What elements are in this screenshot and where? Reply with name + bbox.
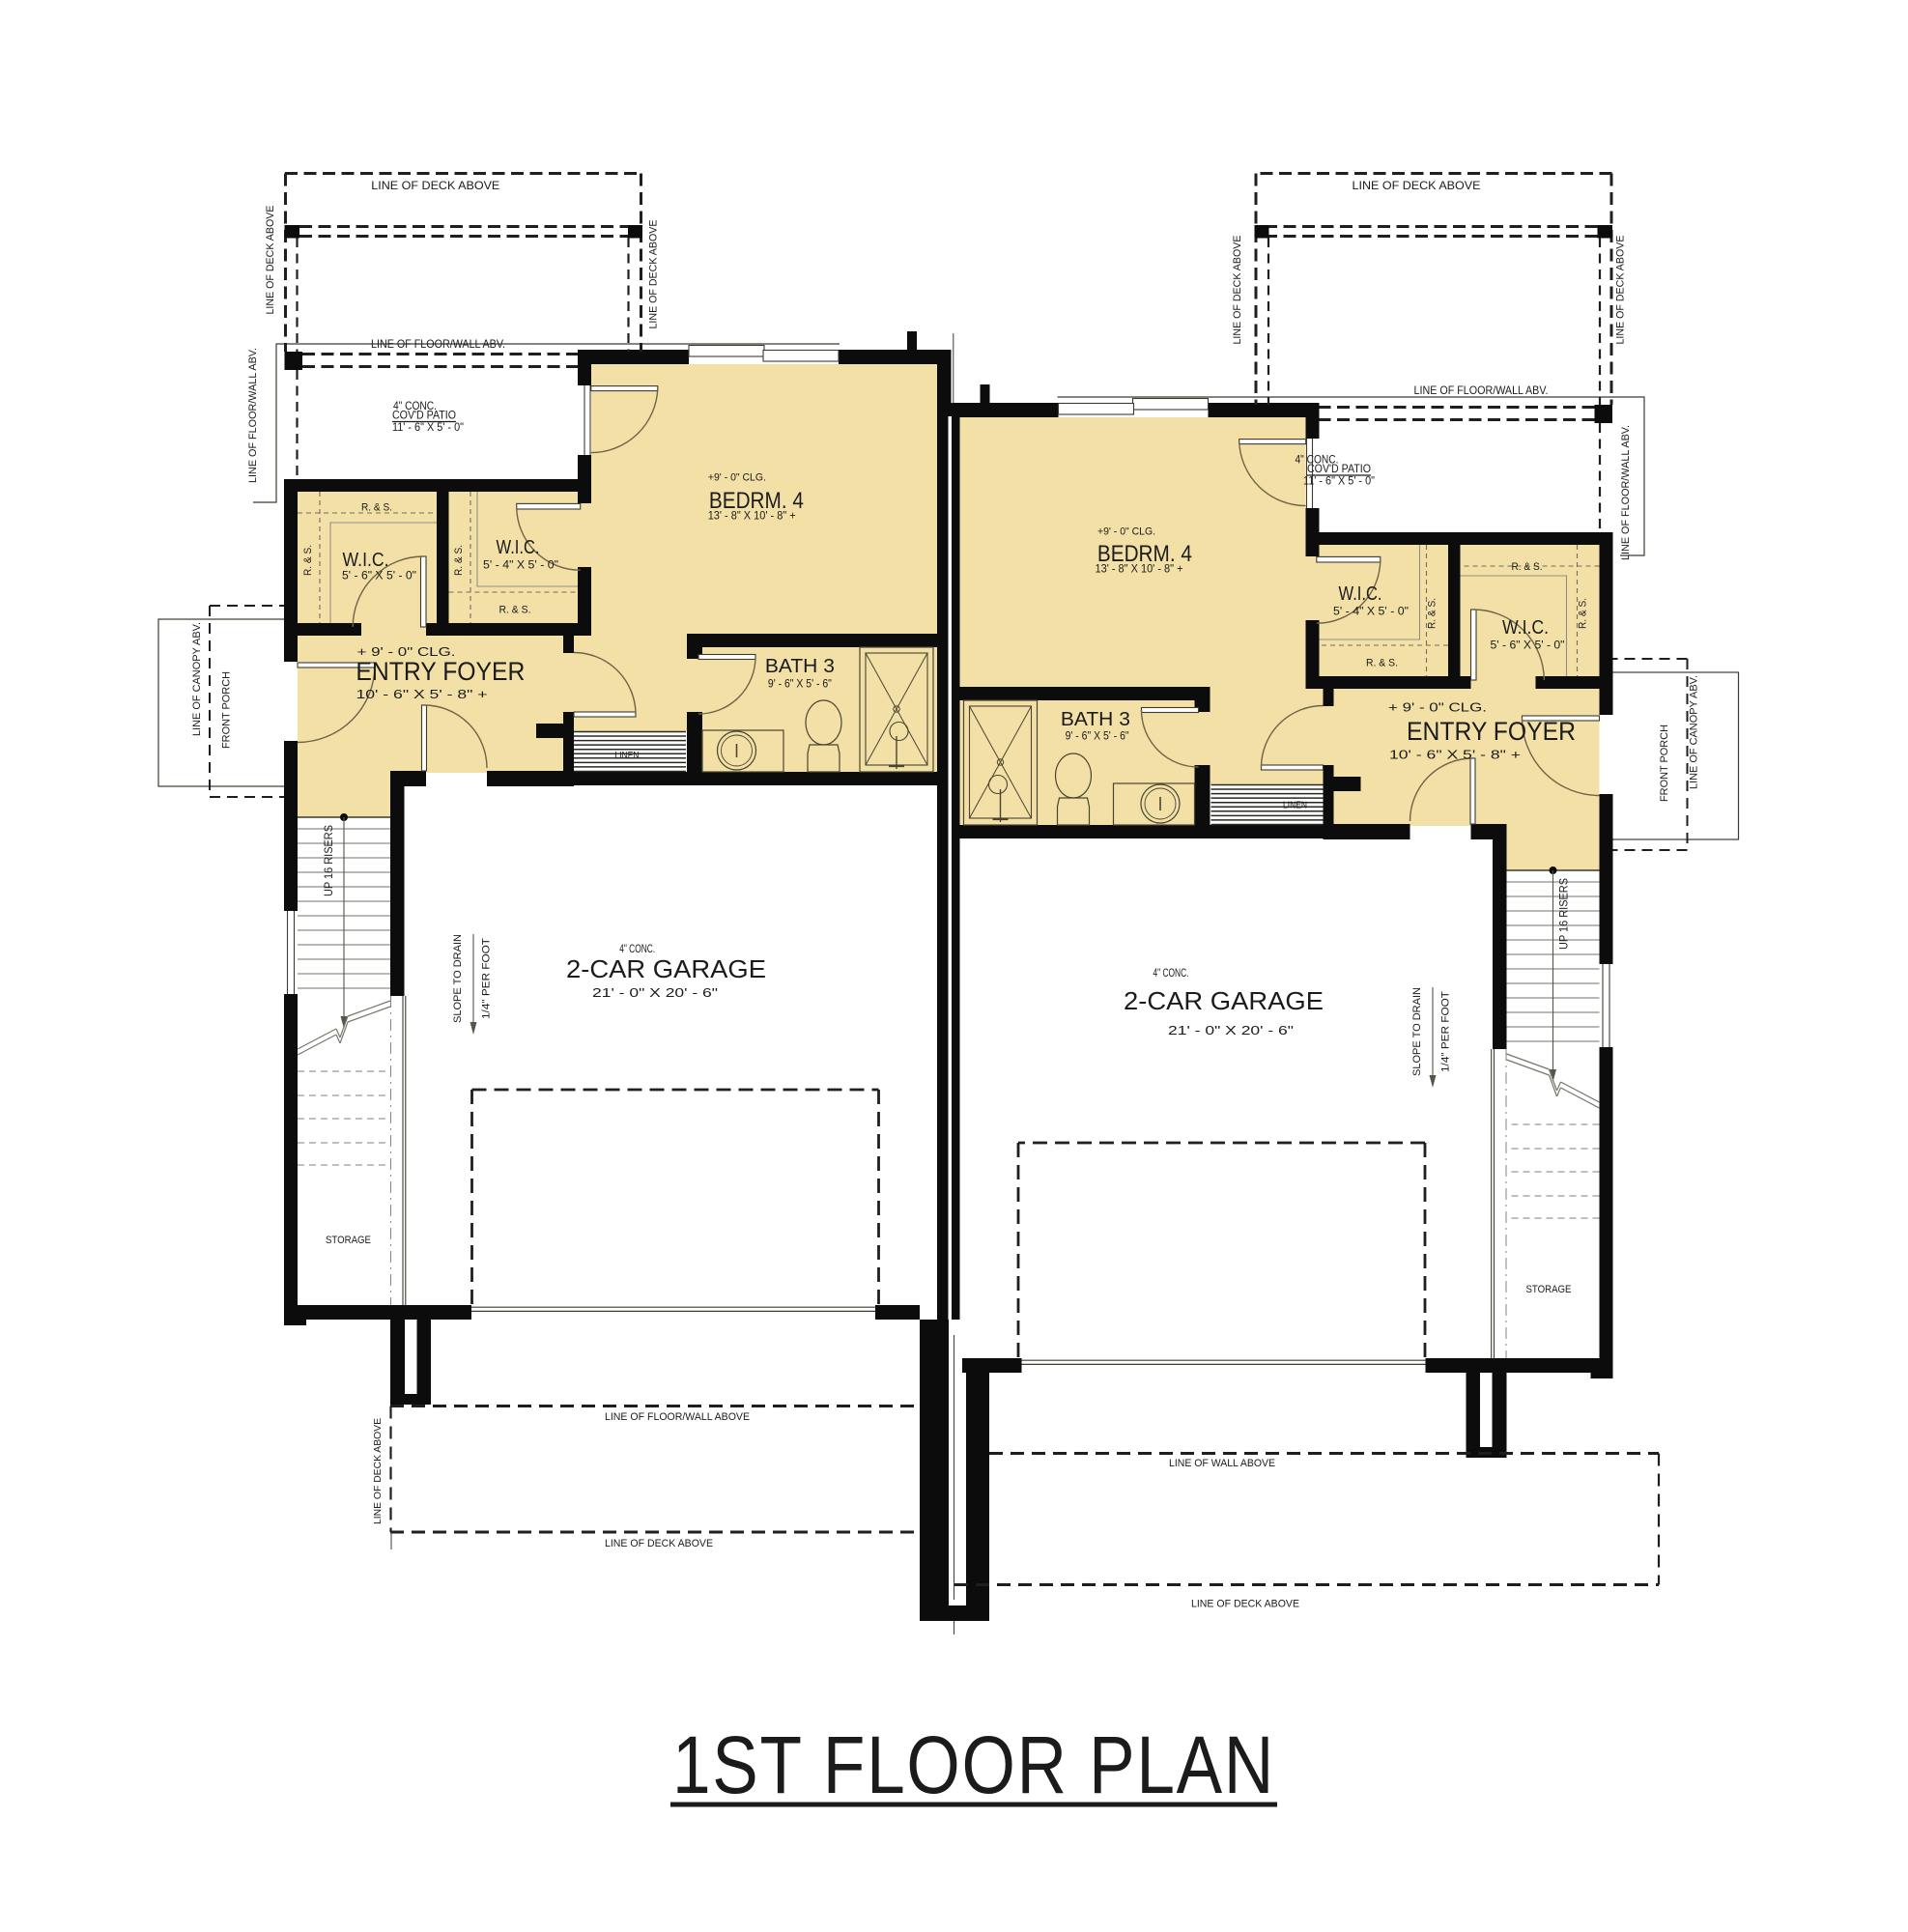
svg-text:9' - 6" X 5' - 6": 9' - 6" X 5' - 6" xyxy=(768,677,832,691)
svg-text:UP 16 RISERS: UP 16 RISERS xyxy=(1557,878,1571,950)
svg-text:21' - 0" X 20' - 6": 21' - 0" X 20' - 6" xyxy=(1168,1023,1295,1037)
svg-text:LINE OF FLOOR/WALL ABOVE: LINE OF FLOOR/WALL ABOVE xyxy=(605,1411,750,1423)
svg-text:ENTRY FOYER: ENTRY FOYER xyxy=(356,657,525,686)
svg-text:+9' - 0" CLG.: +9' - 0" CLG. xyxy=(1097,526,1155,538)
svg-text:STORAGE: STORAGE xyxy=(326,1235,371,1246)
svg-text:LINE OF FLOOR/WALL ABV.: LINE OF FLOOR/WALL ABV. xyxy=(371,337,505,351)
svg-text:UP 16 RISERS: UP 16 RISERS xyxy=(322,825,335,896)
svg-text:LINE OF DECK ABOVE: LINE OF DECK ABOVE xyxy=(265,206,276,315)
svg-text:STORAGE: STORAGE xyxy=(1526,1284,1572,1295)
svg-text:R. & S.: R. & S. xyxy=(1366,658,1398,669)
svg-text:LINE OF DECK ABOVE: LINE OF DECK ABOVE xyxy=(1615,236,1627,345)
svg-text:R. & S.: R. & S. xyxy=(1578,598,1589,629)
svg-text:5' - 4" X 5' - 0": 5' - 4" X 5' - 0" xyxy=(483,558,558,572)
svg-text:LINE OF DECK ABOVE: LINE OF DECK ABOVE xyxy=(372,1418,384,1524)
svg-text:R. & S.: R. & S. xyxy=(302,545,314,576)
svg-text:W.I.C.: W.I.C. xyxy=(1502,617,1549,639)
svg-text:R. & S.: R. & S. xyxy=(1512,561,1543,573)
svg-text:2-CAR GARAGE: 2-CAR GARAGE xyxy=(1124,986,1324,1015)
svg-text:10' - 6" X 5' - 8" +: 10' - 6" X 5' - 8" + xyxy=(356,687,488,701)
svg-text:9' - 6" X 5' - 6": 9' - 6" X 5' - 6" xyxy=(1066,729,1129,743)
svg-text:LINE OF CANOPY ABV.: LINE OF CANOPY ABV. xyxy=(1689,675,1700,789)
svg-text:2-CAR GARAGE: 2-CAR GARAGE xyxy=(566,954,766,983)
svg-text:4" CONC.: 4" CONC. xyxy=(1153,966,1189,980)
svg-text:FRONT PORCH: FRONT PORCH xyxy=(1659,724,1670,802)
svg-text:LINE OF DECK ABOVE: LINE OF DECK ABOVE xyxy=(371,179,499,192)
svg-text:R. & S.: R. & S. xyxy=(499,605,531,616)
svg-text:13' - 8" X 10' - 8" +: 13' - 8" X 10' - 8" + xyxy=(708,509,796,523)
svg-text:13' - 8" X 10' - 8" +: 13' - 8" X 10' - 8" + xyxy=(1096,562,1183,576)
svg-text:5' - 6" X 5' - 0": 5' - 6" X 5' - 0" xyxy=(1491,639,1565,652)
svg-text:+9' - 0" CLG.: +9' - 0" CLG. xyxy=(708,472,766,484)
svg-text:LINE OF DECK ABOVE: LINE OF DECK ABOVE xyxy=(1191,1599,1299,1610)
svg-text:LINE OF WALL ABOVE: LINE OF WALL ABOVE xyxy=(1169,1458,1275,1469)
svg-text:R. & S.: R. & S. xyxy=(453,545,465,576)
svg-text:LINE OF CANOPY ABV.: LINE OF CANOPY ABV. xyxy=(191,622,203,736)
svg-text:SLOPE TO DRAIN: SLOPE TO DRAIN xyxy=(452,934,464,1023)
svg-text:21' - 0" X 20' - 6": 21' - 0" X 20' - 6" xyxy=(592,985,719,1000)
svg-text:11' - 6" X 5' - 0": 11' - 6" X 5' - 0" xyxy=(1303,474,1375,488)
svg-text:LINE OF DECK ABOVE: LINE OF DECK ABOVE xyxy=(1232,236,1243,345)
svg-text:LINE OF FLOOR/WALL ABV.: LINE OF FLOOR/WALL ABV. xyxy=(1414,384,1549,397)
svg-text:LINE OF FLOOR/WALL ABV.: LINE OF FLOOR/WALL ABV. xyxy=(247,348,259,483)
svg-text:R. & S.: R. & S. xyxy=(361,502,392,514)
svg-text:LINE OF DECK ABOVE: LINE OF DECK ABOVE xyxy=(648,220,660,329)
svg-text:LINEN: LINEN xyxy=(615,750,640,761)
svg-text:BATH 3: BATH 3 xyxy=(1061,709,1130,730)
svg-text:LINE OF DECK ABOVE: LINE OF DECK ABOVE xyxy=(605,1538,713,1549)
svg-text:LINE OF DECK ABOVE: LINE OF DECK ABOVE xyxy=(1353,179,1481,192)
svg-text:1/4" PER FOOT: 1/4" PER FOOT xyxy=(1440,991,1452,1072)
svg-text:10' - 6" X 5' - 8" +: 10' - 6" X 5' - 8" + xyxy=(1389,748,1521,762)
svg-text:+ 9' - 0" CLG.: + 9' - 0" CLG. xyxy=(1388,700,1487,715)
svg-text:4" CONC.: 4" CONC. xyxy=(619,942,655,955)
svg-text:W.I.C.: W.I.C. xyxy=(1339,583,1382,605)
svg-text:ENTRY FOYER: ENTRY FOYER xyxy=(1407,717,1576,746)
svg-text:LINEN: LINEN xyxy=(1283,800,1307,811)
svg-text:BATH 3: BATH 3 xyxy=(765,656,835,677)
svg-text:FRONT PORCH: FRONT PORCH xyxy=(221,671,233,749)
svg-text:5' - 4" X 5' - 0": 5' - 4" X 5' - 0" xyxy=(1333,605,1409,618)
svg-text:W.I.C.: W.I.C. xyxy=(497,537,540,558)
svg-text:11' - 6" X 5' - 0": 11' - 6" X 5' - 0" xyxy=(392,420,464,434)
svg-text:SLOPE TO DRAIN: SLOPE TO DRAIN xyxy=(1411,987,1423,1076)
svg-text:R. & S.: R. & S. xyxy=(1427,598,1438,629)
svg-text:5' - 6" X 5' - 0": 5' - 6" X 5' - 0" xyxy=(342,569,416,582)
svg-text:1ST FLOOR PLAN: 1ST FLOOR PLAN xyxy=(672,1719,1275,1810)
svg-text:LINE OF FLOOR/WALL ABV.: LINE OF FLOOR/WALL ABV. xyxy=(1620,425,1632,560)
svg-text:1/4" PER FOOT: 1/4" PER FOOT xyxy=(481,938,493,1019)
